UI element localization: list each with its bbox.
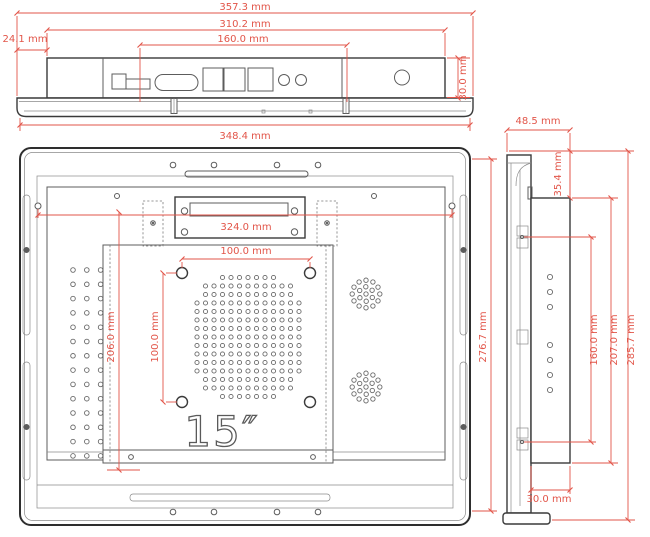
power-connector: [112, 74, 126, 89]
back-view: 15″ 324.0 mm 100.0 mm 100.0 mm 206.0 mm …: [20, 148, 497, 525]
dim-left-offset: 24.1 mm: [3, 34, 48, 45]
dim-bracket-to-base: 206.0 mm: [106, 311, 117, 362]
dim-panel-height: 276.7 mm: [478, 311, 489, 362]
top-view: 357.3 mm 310.2 mm 160.0 mm 24.1 mm 30.0 …: [3, 2, 473, 142]
dim-bracket-span: 324.0 mm: [220, 222, 271, 233]
top-chassis-body: [47, 58, 445, 98]
power-connector-tab: [126, 79, 150, 89]
dim-rear-cover-height: 207.0 mm: [609, 314, 620, 365]
drawing-canvas: 357.3 mm 310.2 mm 160.0 mm 24.1 mm 30.0 …: [0, 0, 650, 537]
dim-overall-depth: 48.5 mm: [516, 116, 561, 127]
port-box-1: [203, 68, 223, 91]
dim-chassis-depth: 30.0 mm: [458, 56, 469, 101]
vga-connector: [155, 75, 198, 91]
port-box-3: [248, 68, 273, 91]
side-bottom-foot: [503, 513, 550, 524]
front-panel-edge: [17, 98, 473, 117]
dim-rear-cover-bottom-depth: 30.0 mm: [527, 494, 572, 505]
side-bezel-profile: [507, 155, 531, 513]
screen-size-label: 15″: [184, 407, 259, 456]
side-rear-cover: [531, 198, 570, 463]
dim-port-span: 160.0 mm: [217, 34, 268, 45]
dim-top-inset: 35.4 mm: [553, 152, 564, 197]
dim-overall-height: 285.7 mm: [626, 314, 637, 365]
dim-mount-hole-span: 160.0 mm: [589, 314, 600, 365]
dim-vesa-height: 100.0 mm: [150, 311, 161, 362]
dim-back-cover-width: 348.4 mm: [219, 131, 270, 142]
dim-chassis-width: 310.2 mm: [219, 19, 270, 30]
dim-overall-width: 357.3 mm: [219, 2, 270, 13]
side-view: 48.5 mm 35.4 mm 160.0 mm 207.0 mm 285.7 …: [503, 116, 637, 524]
dim-vesa-width: 100.0 mm: [220, 246, 271, 257]
technical-drawing: 357.3 mm 310.2 mm 160.0 mm 24.1 mm 30.0 …: [0, 0, 650, 537]
port-box-2: [224, 68, 245, 91]
